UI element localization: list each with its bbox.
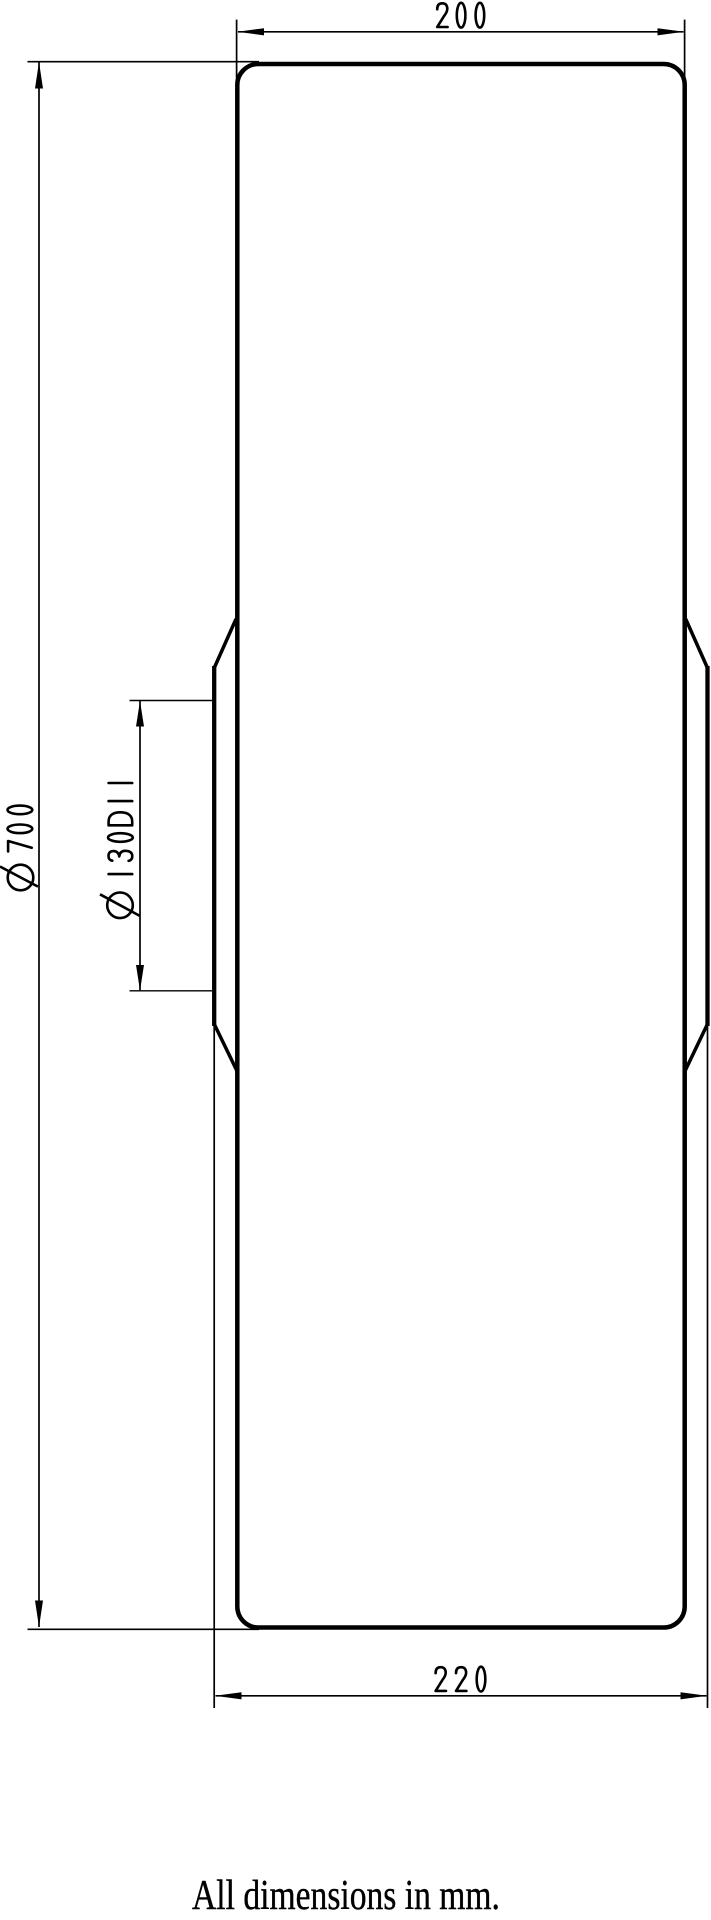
- svg-text:All dimensions in mm.: All dimensions in mm.: [192, 1873, 500, 1919]
